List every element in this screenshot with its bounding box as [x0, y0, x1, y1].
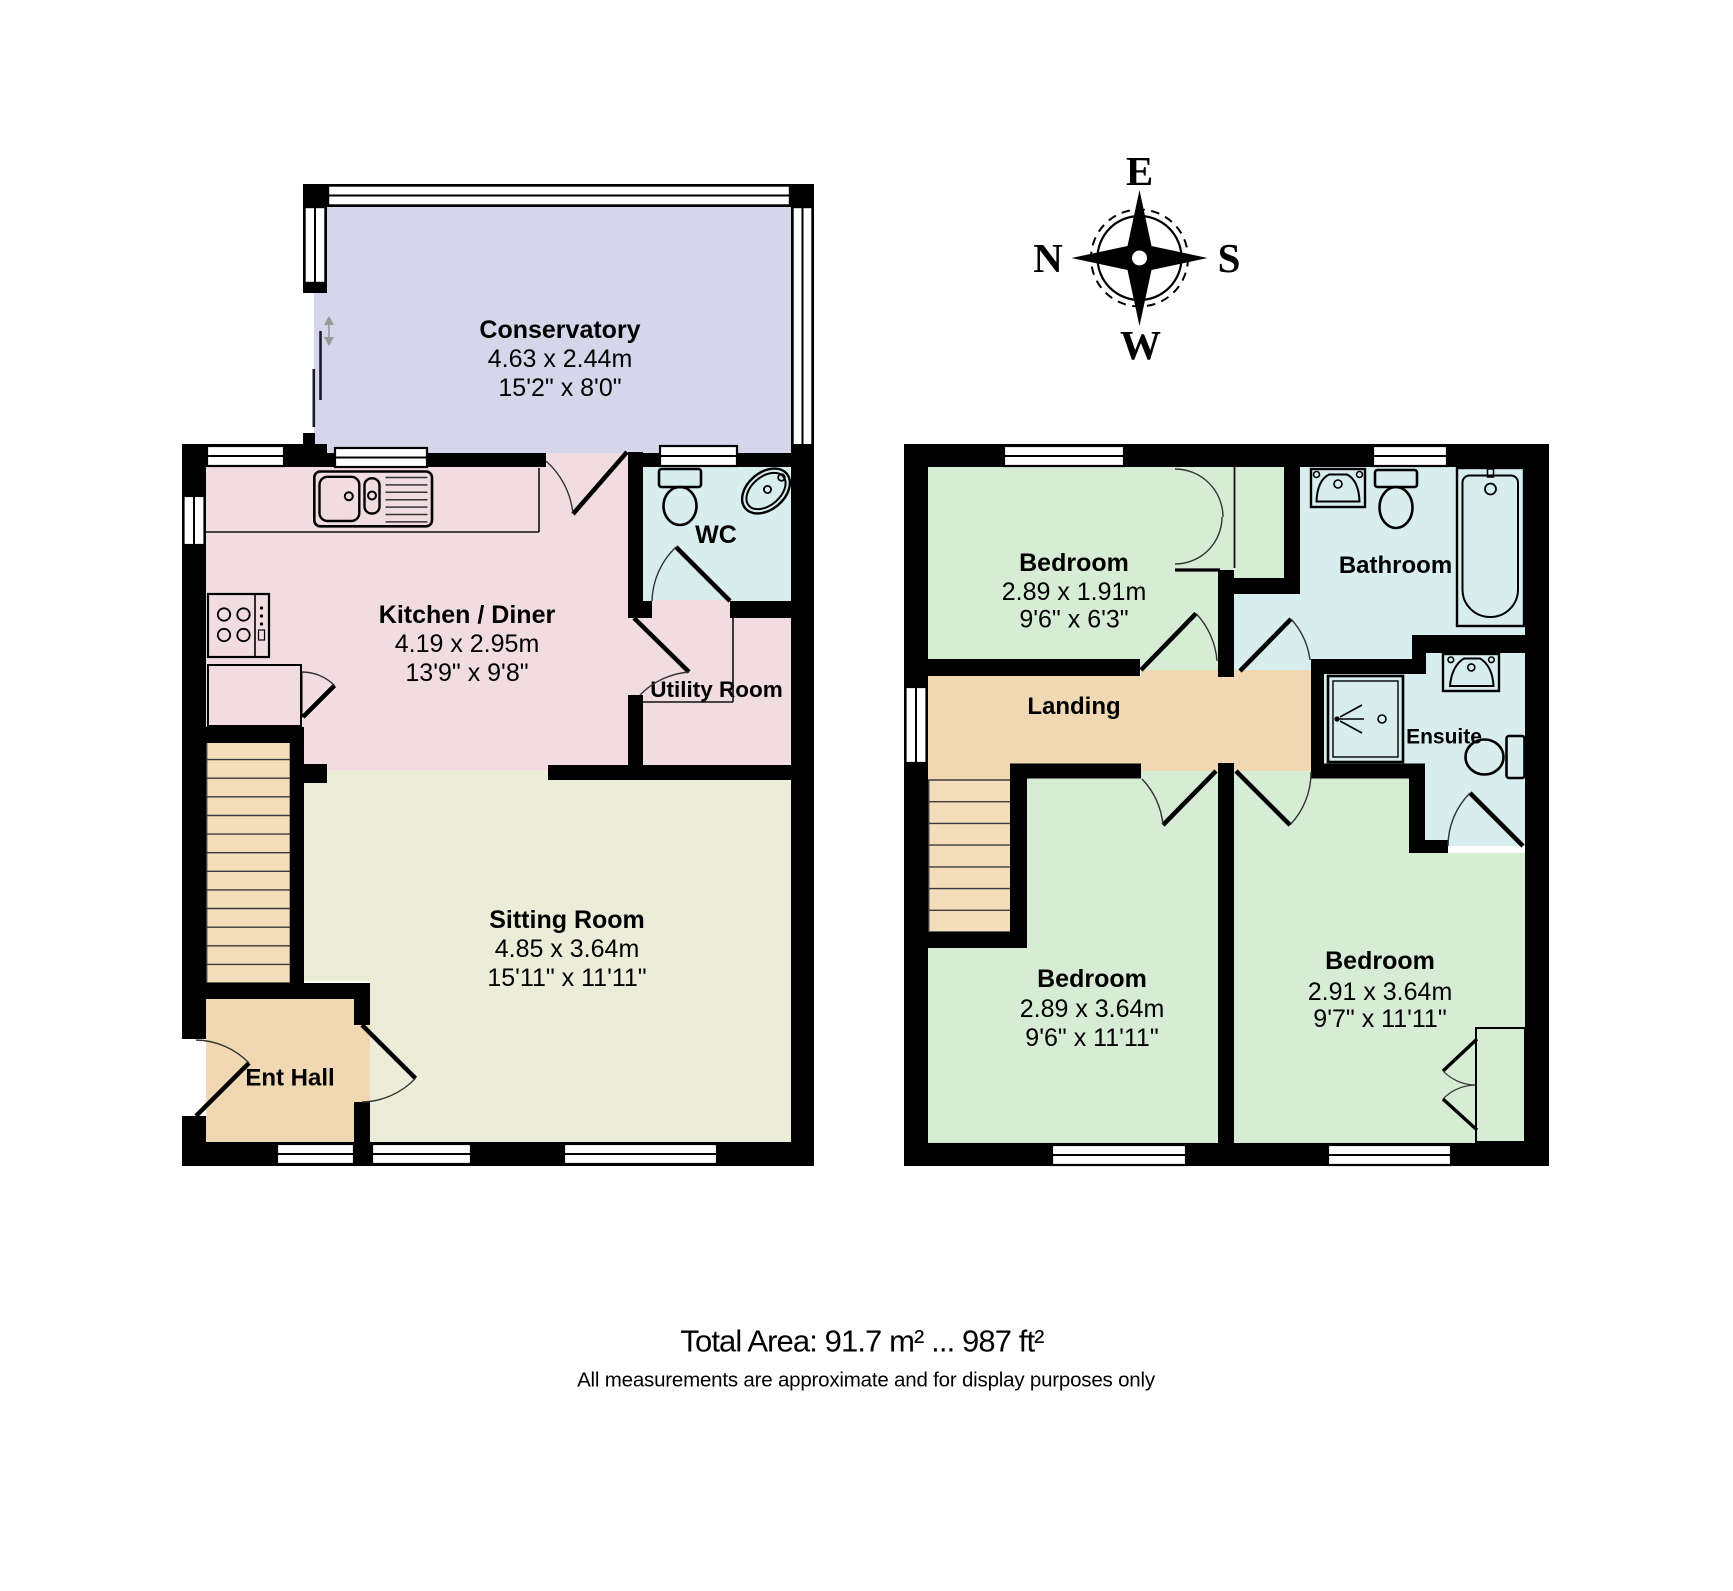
svg-text:Total Area: 91.7 m² ... 987 ft: Total Area: 91.7 m² ... 987 ft²	[680, 1324, 1044, 1359]
svg-text:WC: WC	[695, 521, 737, 549]
svg-text:2.89 x 3.64m: 2.89 x 3.64m	[1020, 995, 1165, 1023]
svg-text:9'6" x 11'11": 9'6" x 11'11"	[1025, 1024, 1158, 1052]
svg-text:W: W	[1120, 322, 1161, 368]
svg-text:Utility Room: Utility Room	[650, 677, 783, 702]
svg-text:Kitchen / Diner: Kitchen / Diner	[379, 601, 556, 629]
svg-text:All measurements are approxima: All measurements are approximate and for…	[577, 1369, 1156, 1392]
svg-text:2.89 x 1.91m: 2.89 x 1.91m	[1002, 578, 1147, 606]
svg-text:Sitting Room: Sitting Room	[489, 906, 645, 934]
svg-text:N: N	[1033, 235, 1063, 281]
svg-text:9'6" x 6'3": 9'6" x 6'3"	[1019, 606, 1128, 634]
svg-text:Ent Hall: Ent Hall	[245, 1065, 334, 1092]
svg-text:Bedroom: Bedroom	[1037, 965, 1147, 993]
svg-text:4.19 x 2.95m: 4.19 x 2.95m	[395, 630, 540, 658]
svg-text:15'2" x 8'0": 15'2" x 8'0"	[498, 374, 621, 402]
svg-text:4.63 x 2.44m: 4.63 x 2.44m	[488, 345, 633, 373]
svg-text:Conservatory: Conservatory	[479, 316, 640, 344]
svg-text:S: S	[1218, 235, 1241, 281]
svg-text:E: E	[1126, 148, 1153, 194]
svg-text:Bedroom: Bedroom	[1019, 549, 1129, 577]
svg-text:15'11" x 11'11": 15'11" x 11'11"	[487, 964, 646, 992]
svg-text:9'7" x 11'11": 9'7" x 11'11"	[1313, 1005, 1446, 1033]
svg-text:2.91 x 3.64m: 2.91 x 3.64m	[1308, 978, 1453, 1006]
svg-text:13'9" x 9'8": 13'9" x 9'8"	[405, 659, 528, 687]
svg-text:Bathroom: Bathroom	[1339, 552, 1452, 579]
svg-text:Landing: Landing	[1027, 693, 1120, 720]
svg-text:4.85 x 3.64m: 4.85 x 3.64m	[495, 935, 640, 963]
svg-text:Bedroom: Bedroom	[1325, 947, 1435, 975]
